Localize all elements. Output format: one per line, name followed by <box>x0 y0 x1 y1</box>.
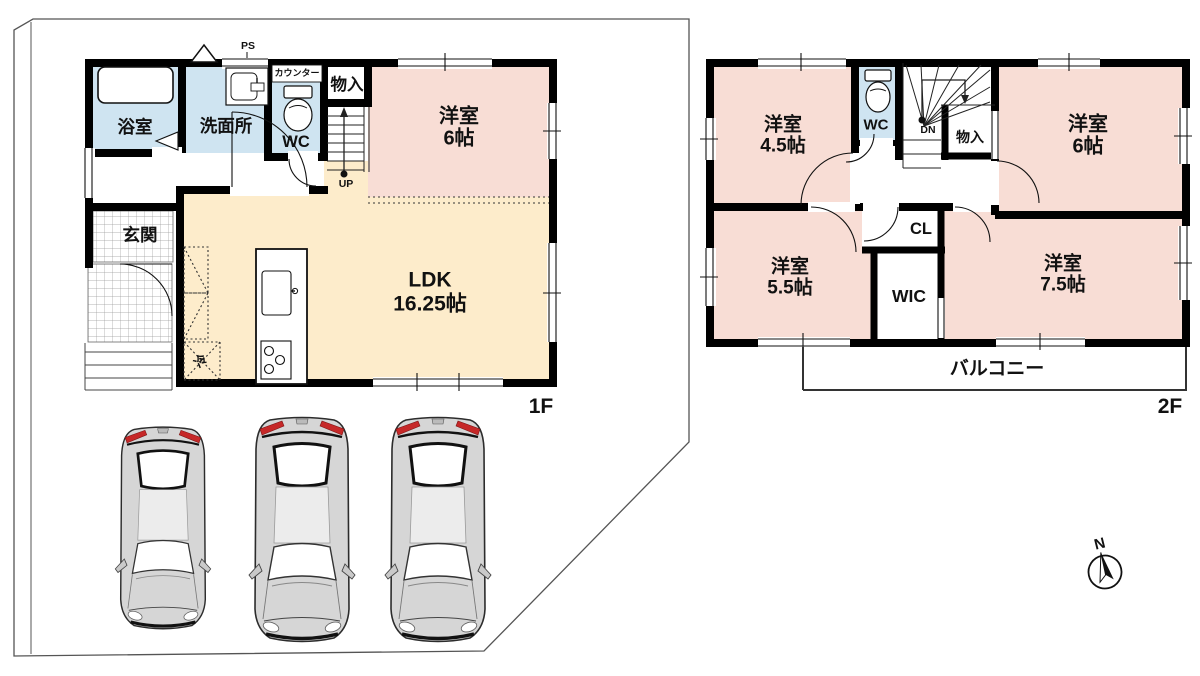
label-up: UP <box>339 179 354 191</box>
label-wc-2f: WC <box>864 118 889 135</box>
car-icons <box>115 418 491 642</box>
washbasin <box>226 68 268 105</box>
label-counter: カウンター <box>274 68 319 78</box>
label-floor1: 1F <box>529 395 554 419</box>
label-western6-1f: 洋室 6帖 <box>439 106 479 151</box>
label-wc-1f: WC <box>282 133 310 151</box>
bathtub <box>98 67 173 103</box>
label-storage-1f: 物入 <box>331 76 364 94</box>
label-wic: WIC <box>892 287 926 307</box>
label-balcony: バルコニー <box>950 358 1045 379</box>
kitchen-counter <box>256 249 307 384</box>
label-storage-2f: 物入 <box>956 130 984 146</box>
label-entrance: 玄関 <box>123 226 158 246</box>
label-western45: 洋室 4.5帖 <box>760 115 805 158</box>
label-washroom: 洗面所 <box>200 117 253 137</box>
floor1-plan <box>83 45 561 391</box>
label-dn: DN <box>920 125 935 137</box>
compass-icon <box>1085 549 1125 592</box>
floor-plan-graphic <box>0 0 1200 676</box>
car-icon <box>385 418 491 642</box>
label-bath: 浴室 <box>118 118 153 138</box>
label-ldk: LDK 16.25帖 <box>393 268 467 315</box>
toilet-2f <box>865 70 891 112</box>
label-western75: 洋室 7.5帖 <box>1040 254 1085 297</box>
label-ps: PS <box>241 41 255 53</box>
car-icon <box>115 427 210 629</box>
label-western55: 洋室 5.5帖 <box>767 257 812 300</box>
label-closet: CL <box>910 220 932 238</box>
floor2-plan <box>700 53 1192 390</box>
label-western6-2f: 洋室 6帖 <box>1068 114 1108 159</box>
label-floor2: 2F <box>1158 395 1183 419</box>
car-icon <box>249 418 355 642</box>
floor-plan-page: PS カウンター 物入 浴室 洗面所 WC UP 洋室 6帖 LDK 16.25… <box>0 0 1200 676</box>
